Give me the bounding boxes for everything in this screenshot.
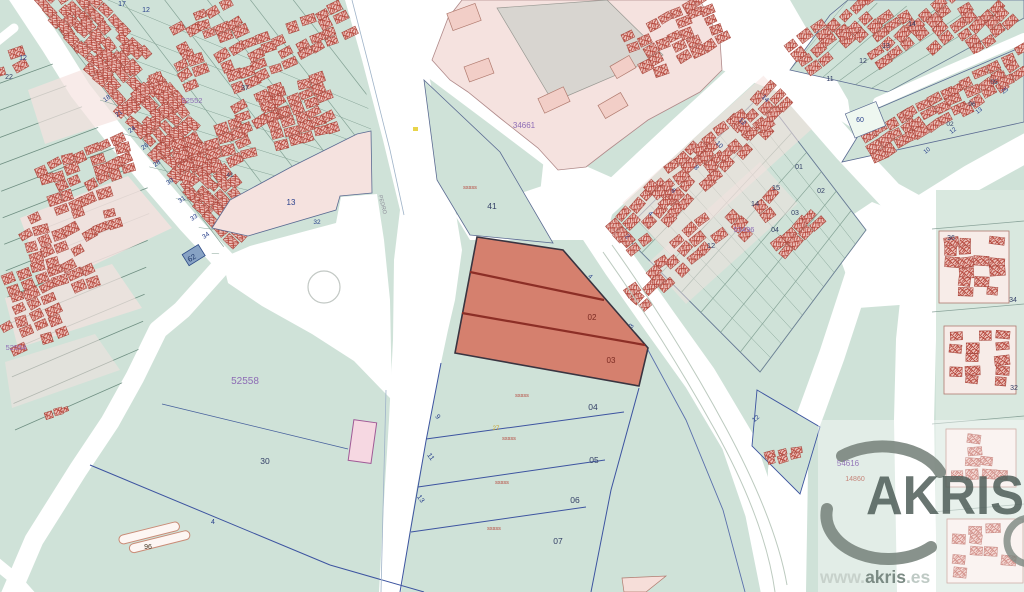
svg-text:02: 02 xyxy=(817,188,825,195)
svg-text:01: 01 xyxy=(795,164,803,171)
svg-text:53496: 53496 xyxy=(734,225,755,234)
svg-text:60: 60 xyxy=(856,117,864,124)
svg-text:06: 06 xyxy=(570,495,580,505)
svg-text:52554: 52554 xyxy=(6,343,27,352)
svg-text:15: 15 xyxy=(772,183,780,192)
svg-text:03: 03 xyxy=(791,210,799,217)
svg-text:12: 12 xyxy=(707,241,715,250)
svg-text:03: 03 xyxy=(607,356,616,365)
svg-text:05: 05 xyxy=(990,79,998,86)
svg-text:sssss: sssss xyxy=(495,480,509,486)
svg-text:4: 4 xyxy=(211,519,215,526)
svg-text:36: 36 xyxy=(947,235,955,242)
svg-text:52552: 52552 xyxy=(182,96,203,105)
svg-text:14860: 14860 xyxy=(845,476,865,483)
svg-text:06: 06 xyxy=(968,101,976,108)
svg-text:41: 41 xyxy=(487,201,497,211)
svg-text:52558: 52558 xyxy=(231,376,259,387)
svg-text:11: 11 xyxy=(826,76,833,83)
svg-text:41: 41 xyxy=(226,172,234,179)
svg-text:04: 04 xyxy=(771,227,779,234)
svg-text:AKRIS: AKRIS xyxy=(866,464,1024,526)
svg-text:12: 12 xyxy=(142,7,150,14)
svg-text:07: 07 xyxy=(553,536,563,546)
svg-text:37: 37 xyxy=(241,85,249,92)
svg-text:32: 32 xyxy=(1010,385,1018,392)
svg-text:13: 13 xyxy=(882,43,890,50)
svg-text:sssss: sssss xyxy=(502,436,516,442)
svg-text:12: 12 xyxy=(19,55,27,62)
svg-text:05: 05 xyxy=(589,455,599,465)
svg-text:34: 34 xyxy=(1009,297,1017,304)
svg-text:12: 12 xyxy=(859,58,867,65)
svg-text:sssss: sssss xyxy=(515,393,529,399)
svg-text:14: 14 xyxy=(908,21,916,28)
svg-text:22: 22 xyxy=(5,74,13,81)
svg-text:13: 13 xyxy=(287,198,296,207)
svg-text:www.akris.es: www.akris.es xyxy=(819,567,931,587)
svg-text:14: 14 xyxy=(751,199,759,208)
svg-text:04: 04 xyxy=(588,402,598,412)
svg-text:02: 02 xyxy=(588,313,597,322)
svg-text:27: 27 xyxy=(493,426,500,432)
svg-text:54616: 54616 xyxy=(837,459,860,468)
svg-text:30: 30 xyxy=(260,456,270,466)
svg-text:17: 17 xyxy=(118,1,126,8)
svg-text:34661: 34661 xyxy=(513,121,536,130)
svg-text:32: 32 xyxy=(313,219,321,226)
svg-text:sssss: sssss xyxy=(487,526,501,532)
svg-text:sssss: sssss xyxy=(463,185,477,191)
svg-text:96: 96 xyxy=(144,544,152,551)
